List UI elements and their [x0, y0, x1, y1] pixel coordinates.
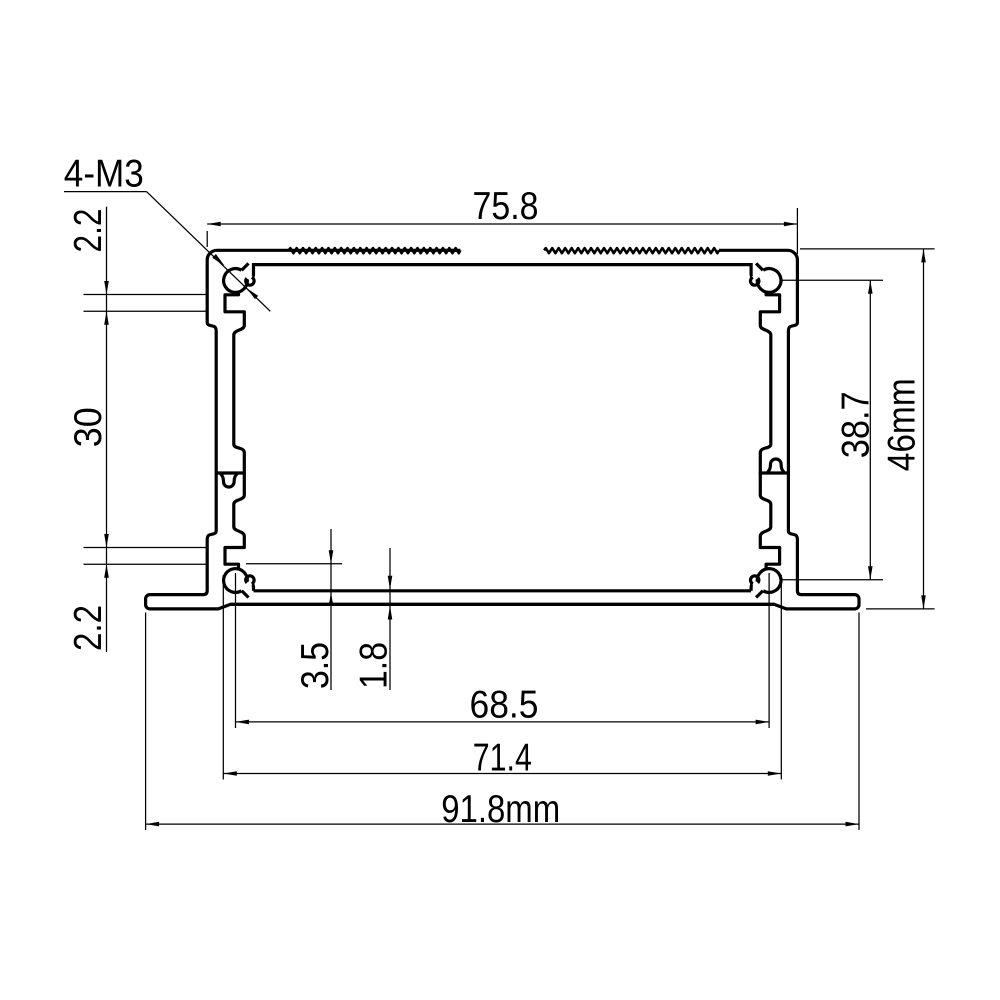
svg-text:38.7: 38.7 [835, 391, 878, 458]
svg-text:2.2: 2.2 [67, 209, 110, 253]
svg-text:75.8: 75.8 [473, 185, 539, 228]
svg-text:68.5: 68.5 [470, 684, 539, 727]
svg-text:2.2: 2.2 [67, 605, 110, 651]
svg-text:46mm: 46mm [881, 378, 924, 471]
svg-text:4-M3: 4-M3 [64, 153, 144, 196]
svg-text:1.8: 1.8 [353, 642, 396, 689]
svg-text:71.4: 71.4 [473, 737, 532, 780]
svg-text:30: 30 [67, 407, 110, 447]
svg-text:91.8mm: 91.8mm [441, 788, 560, 831]
svg-text:3.5: 3.5 [294, 642, 337, 689]
